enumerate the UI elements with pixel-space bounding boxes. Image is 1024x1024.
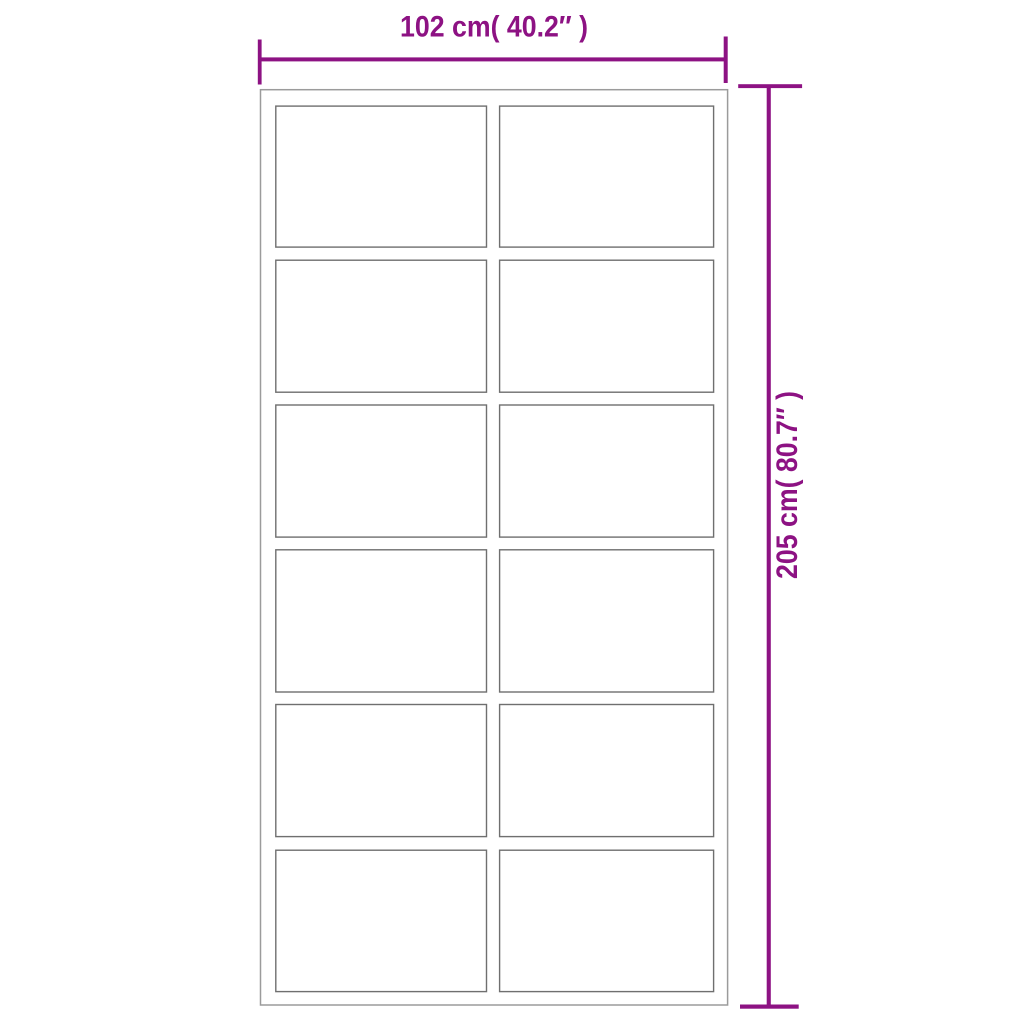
svg-text:205 cm( 80.7″ ): 205 cm( 80.7″ ) [771,391,804,579]
svg-text:102 cm( 40.2″ ): 102 cm( 40.2″ ) [400,11,588,44]
